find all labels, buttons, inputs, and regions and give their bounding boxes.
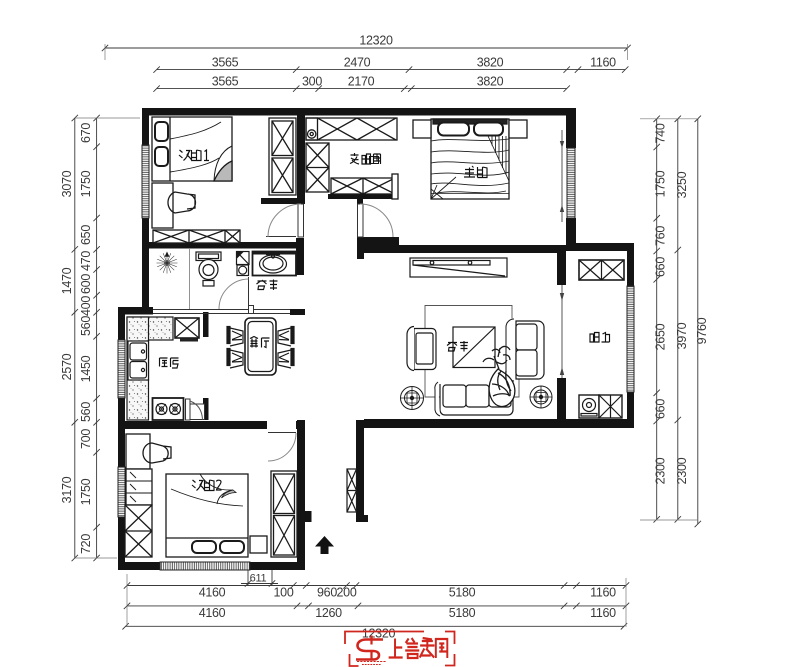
svg-text:3565: 3565 <box>212 75 239 89</box>
svg-text:1750: 1750 <box>79 170 93 197</box>
svg-text:611: 611 <box>250 573 267 585</box>
svg-text:760: 760 <box>654 226 668 246</box>
svg-text:700: 700 <box>79 429 93 449</box>
svg-text:1470: 1470 <box>60 267 74 294</box>
svg-text:650: 650 <box>79 225 93 245</box>
svg-text:2570: 2570 <box>60 353 74 380</box>
svg-text:740: 740 <box>654 123 668 143</box>
svg-text:720: 720 <box>79 534 93 554</box>
svg-text:9760: 9760 <box>695 317 709 344</box>
svg-text:3170: 3170 <box>60 476 74 503</box>
svg-text:960: 960 <box>317 586 337 600</box>
svg-text:400: 400 <box>79 296 93 316</box>
svg-text:3250: 3250 <box>675 171 689 198</box>
svg-text:560: 560 <box>79 316 93 336</box>
svg-text:3070: 3070 <box>60 170 74 197</box>
svg-text:1160: 1160 <box>590 586 616 600</box>
svg-text:2170: 2170 <box>348 75 375 89</box>
svg-text:1450: 1450 <box>79 355 93 382</box>
svg-text:1160: 1160 <box>590 606 616 620</box>
svg-text:2470: 2470 <box>344 56 371 70</box>
svg-text:2650: 2650 <box>654 323 668 350</box>
svg-text:12320: 12320 <box>359 34 393 48</box>
svg-text:4160: 4160 <box>199 586 226 600</box>
svg-text:1260: 1260 <box>315 606 342 620</box>
svg-text:2300: 2300 <box>654 457 668 484</box>
svg-text:3970: 3970 <box>675 322 689 349</box>
svg-text:1160: 1160 <box>590 56 616 70</box>
svg-text:3565: 3565 <box>212 56 239 70</box>
svg-text:3820: 3820 <box>477 56 504 70</box>
svg-text:3820: 3820 <box>477 75 504 89</box>
svg-text:600: 600 <box>79 274 93 294</box>
svg-text:5180: 5180 <box>449 606 476 620</box>
svg-text:100: 100 <box>274 586 294 600</box>
svg-text:200: 200 <box>337 586 357 600</box>
svg-text:300: 300 <box>302 75 322 89</box>
svg-text:470: 470 <box>79 251 93 271</box>
svg-text:1750: 1750 <box>654 170 668 197</box>
svg-text:4160: 4160 <box>199 606 226 620</box>
svg-text:1750: 1750 <box>79 478 93 505</box>
svg-text:5180: 5180 <box>449 586 476 600</box>
svg-text:670: 670 <box>79 123 93 143</box>
svg-text:660: 660 <box>654 399 668 419</box>
svg-text:660: 660 <box>654 257 668 277</box>
svg-text:560: 560 <box>79 402 93 422</box>
svg-text:2300: 2300 <box>675 457 689 484</box>
